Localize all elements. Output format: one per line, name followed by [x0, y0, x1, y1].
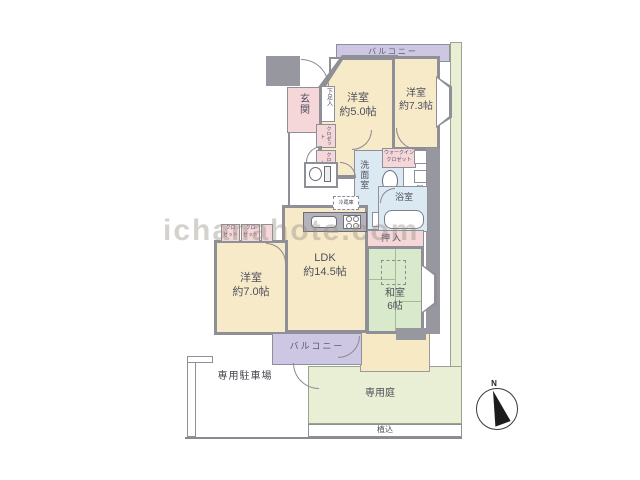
washroom-label: 洗面室	[358, 160, 369, 190]
western-room-7-0-label: 洋室 約7.0帖	[214, 272, 288, 300]
ps-box-2	[414, 170, 427, 183]
shoe-cabinet-label: 下足入	[324, 88, 332, 106]
washitsu-bottom-wall	[396, 328, 426, 340]
washitsu-label: 和室 6帖	[366, 288, 424, 313]
floor-plan: 専用庭 植込 専用駐車場 バルコニー MB 洋室 約5.0帖 洋室 約7.3帖 …	[0, 0, 640, 480]
toilet-bowl-icon	[309, 167, 322, 181]
refrigerator-label: 冷蔵庫	[333, 200, 359, 206]
private-garden-label: 専用庭	[340, 388, 420, 401]
ps-box	[414, 150, 427, 164]
walk-in-closet-label: ウォークイン クロゼット	[382, 150, 416, 164]
genkan-label: 玄関	[296, 93, 309, 115]
watermark-text: ichanahote.com	[163, 214, 473, 248]
compass-north-label: N	[488, 379, 500, 389]
parking-label: 専用駐車場	[205, 371, 285, 384]
toilet-tank-icon	[324, 166, 331, 182]
boundary-fence-line	[185, 437, 462, 439]
kotatsu-spot	[381, 260, 406, 285]
parking-curb-left	[187, 360, 196, 437]
western-room-7-3-label: 洋室 約7.3帖	[390, 88, 442, 113]
garden-gate-arc	[293, 363, 319, 389]
parking-curb-top	[187, 356, 213, 363]
ldk-label: LDK 約14.5帖	[282, 252, 368, 280]
entrance-porch-wall	[266, 56, 300, 86]
compass-needle-icon	[477, 389, 517, 429]
entrance-door-arc	[301, 59, 329, 87]
compass	[476, 388, 518, 430]
hall-closet-1-label: クロゼット	[319, 125, 332, 147]
planting-label: 植込	[308, 425, 462, 435]
